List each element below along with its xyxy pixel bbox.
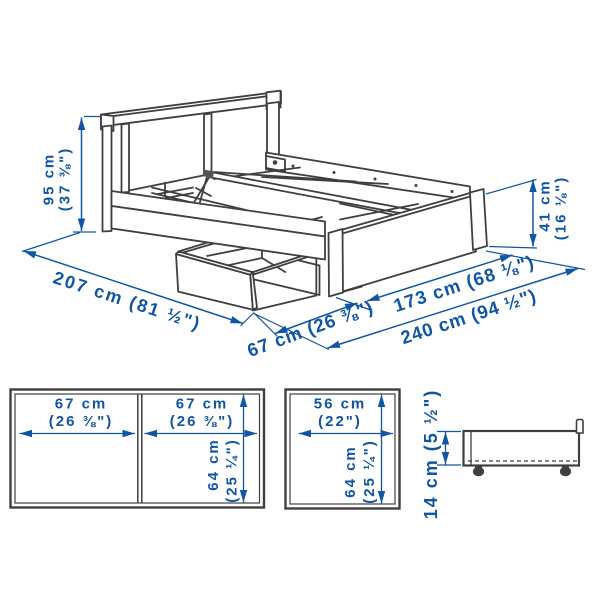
svg-text:(22"): (22") xyxy=(318,413,362,430)
svg-text:(25 ¼"): (25 ¼") xyxy=(224,438,241,502)
svg-text:64 cm: 64 cm xyxy=(205,438,222,491)
svg-text:14 cm (5 ½"): 14 cm (5 ½") xyxy=(421,389,441,520)
svg-text:67 cm (26 ⅜"): 67 cm (26 ⅜") xyxy=(244,296,376,361)
svg-text:(16 ⅛"): (16 ⅛") xyxy=(553,176,570,240)
svg-text:67 cm: 67 cm xyxy=(176,396,229,413)
svg-text:41 cm: 41 cm xyxy=(537,179,554,232)
svg-text:95 cm: 95 cm xyxy=(41,153,58,206)
svg-text:(25 ¼"): (25 ¼") xyxy=(361,439,378,503)
svg-text:56 cm: 56 cm xyxy=(314,396,367,413)
svg-text:67 cm: 67 cm xyxy=(55,396,108,413)
svg-text:64 cm: 64 cm xyxy=(342,445,359,498)
svg-text:(26 ⅜"): (26 ⅜") xyxy=(49,413,113,430)
svg-text:(26 ⅜"): (26 ⅜") xyxy=(170,413,234,430)
svg-text:(37 ⅜"): (37 ⅜") xyxy=(57,147,74,211)
